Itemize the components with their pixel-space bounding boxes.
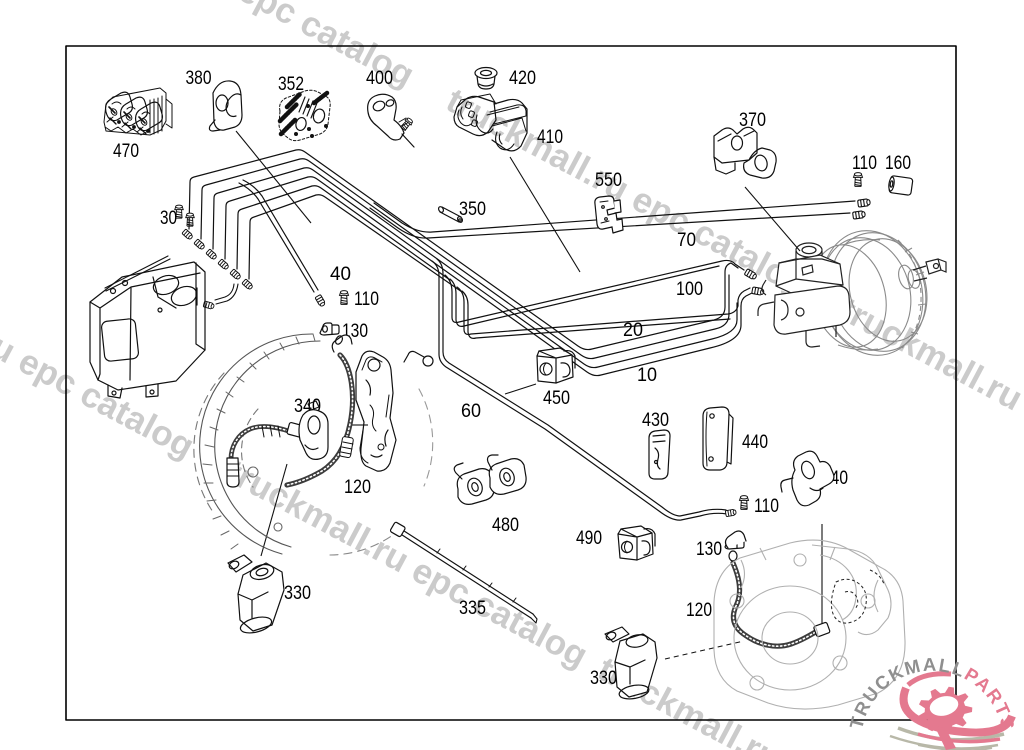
svg-text:40: 40 [330,264,351,285]
svg-text:470: 470 [113,141,139,162]
svg-text:110: 110 [754,496,779,517]
svg-text:380: 380 [186,68,212,89]
svg-text:70: 70 [677,230,696,251]
svg-text:350: 350 [459,199,486,220]
svg-text:490: 490 [576,528,602,549]
svg-text:550: 550 [595,170,622,191]
svg-text:20: 20 [623,320,643,341]
svg-text:330: 330 [590,668,617,689]
svg-text:400: 400 [366,68,393,89]
svg-text:160: 160 [885,153,911,174]
svg-text:410: 410 [537,127,563,148]
svg-text:130: 130 [696,539,722,560]
svg-text:370: 370 [739,110,766,131]
svg-text:430: 430 [642,410,669,431]
svg-text:30: 30 [160,208,177,229]
svg-text:10: 10 [637,365,657,386]
svg-text:120: 120 [686,600,712,621]
svg-text:110: 110 [852,153,877,174]
svg-text:330: 330 [284,583,311,604]
svg-text:352: 352 [278,74,304,95]
svg-text:335: 335 [459,598,486,619]
svg-text:440: 440 [742,432,768,453]
svg-text:480: 480 [492,515,519,536]
svg-text:100: 100 [676,279,703,300]
svg-text:60: 60 [461,401,481,422]
svg-text:420: 420 [509,68,536,89]
svg-text:120: 120 [344,477,371,498]
svg-text:450: 450 [543,388,570,409]
svg-text:110: 110 [354,289,379,310]
